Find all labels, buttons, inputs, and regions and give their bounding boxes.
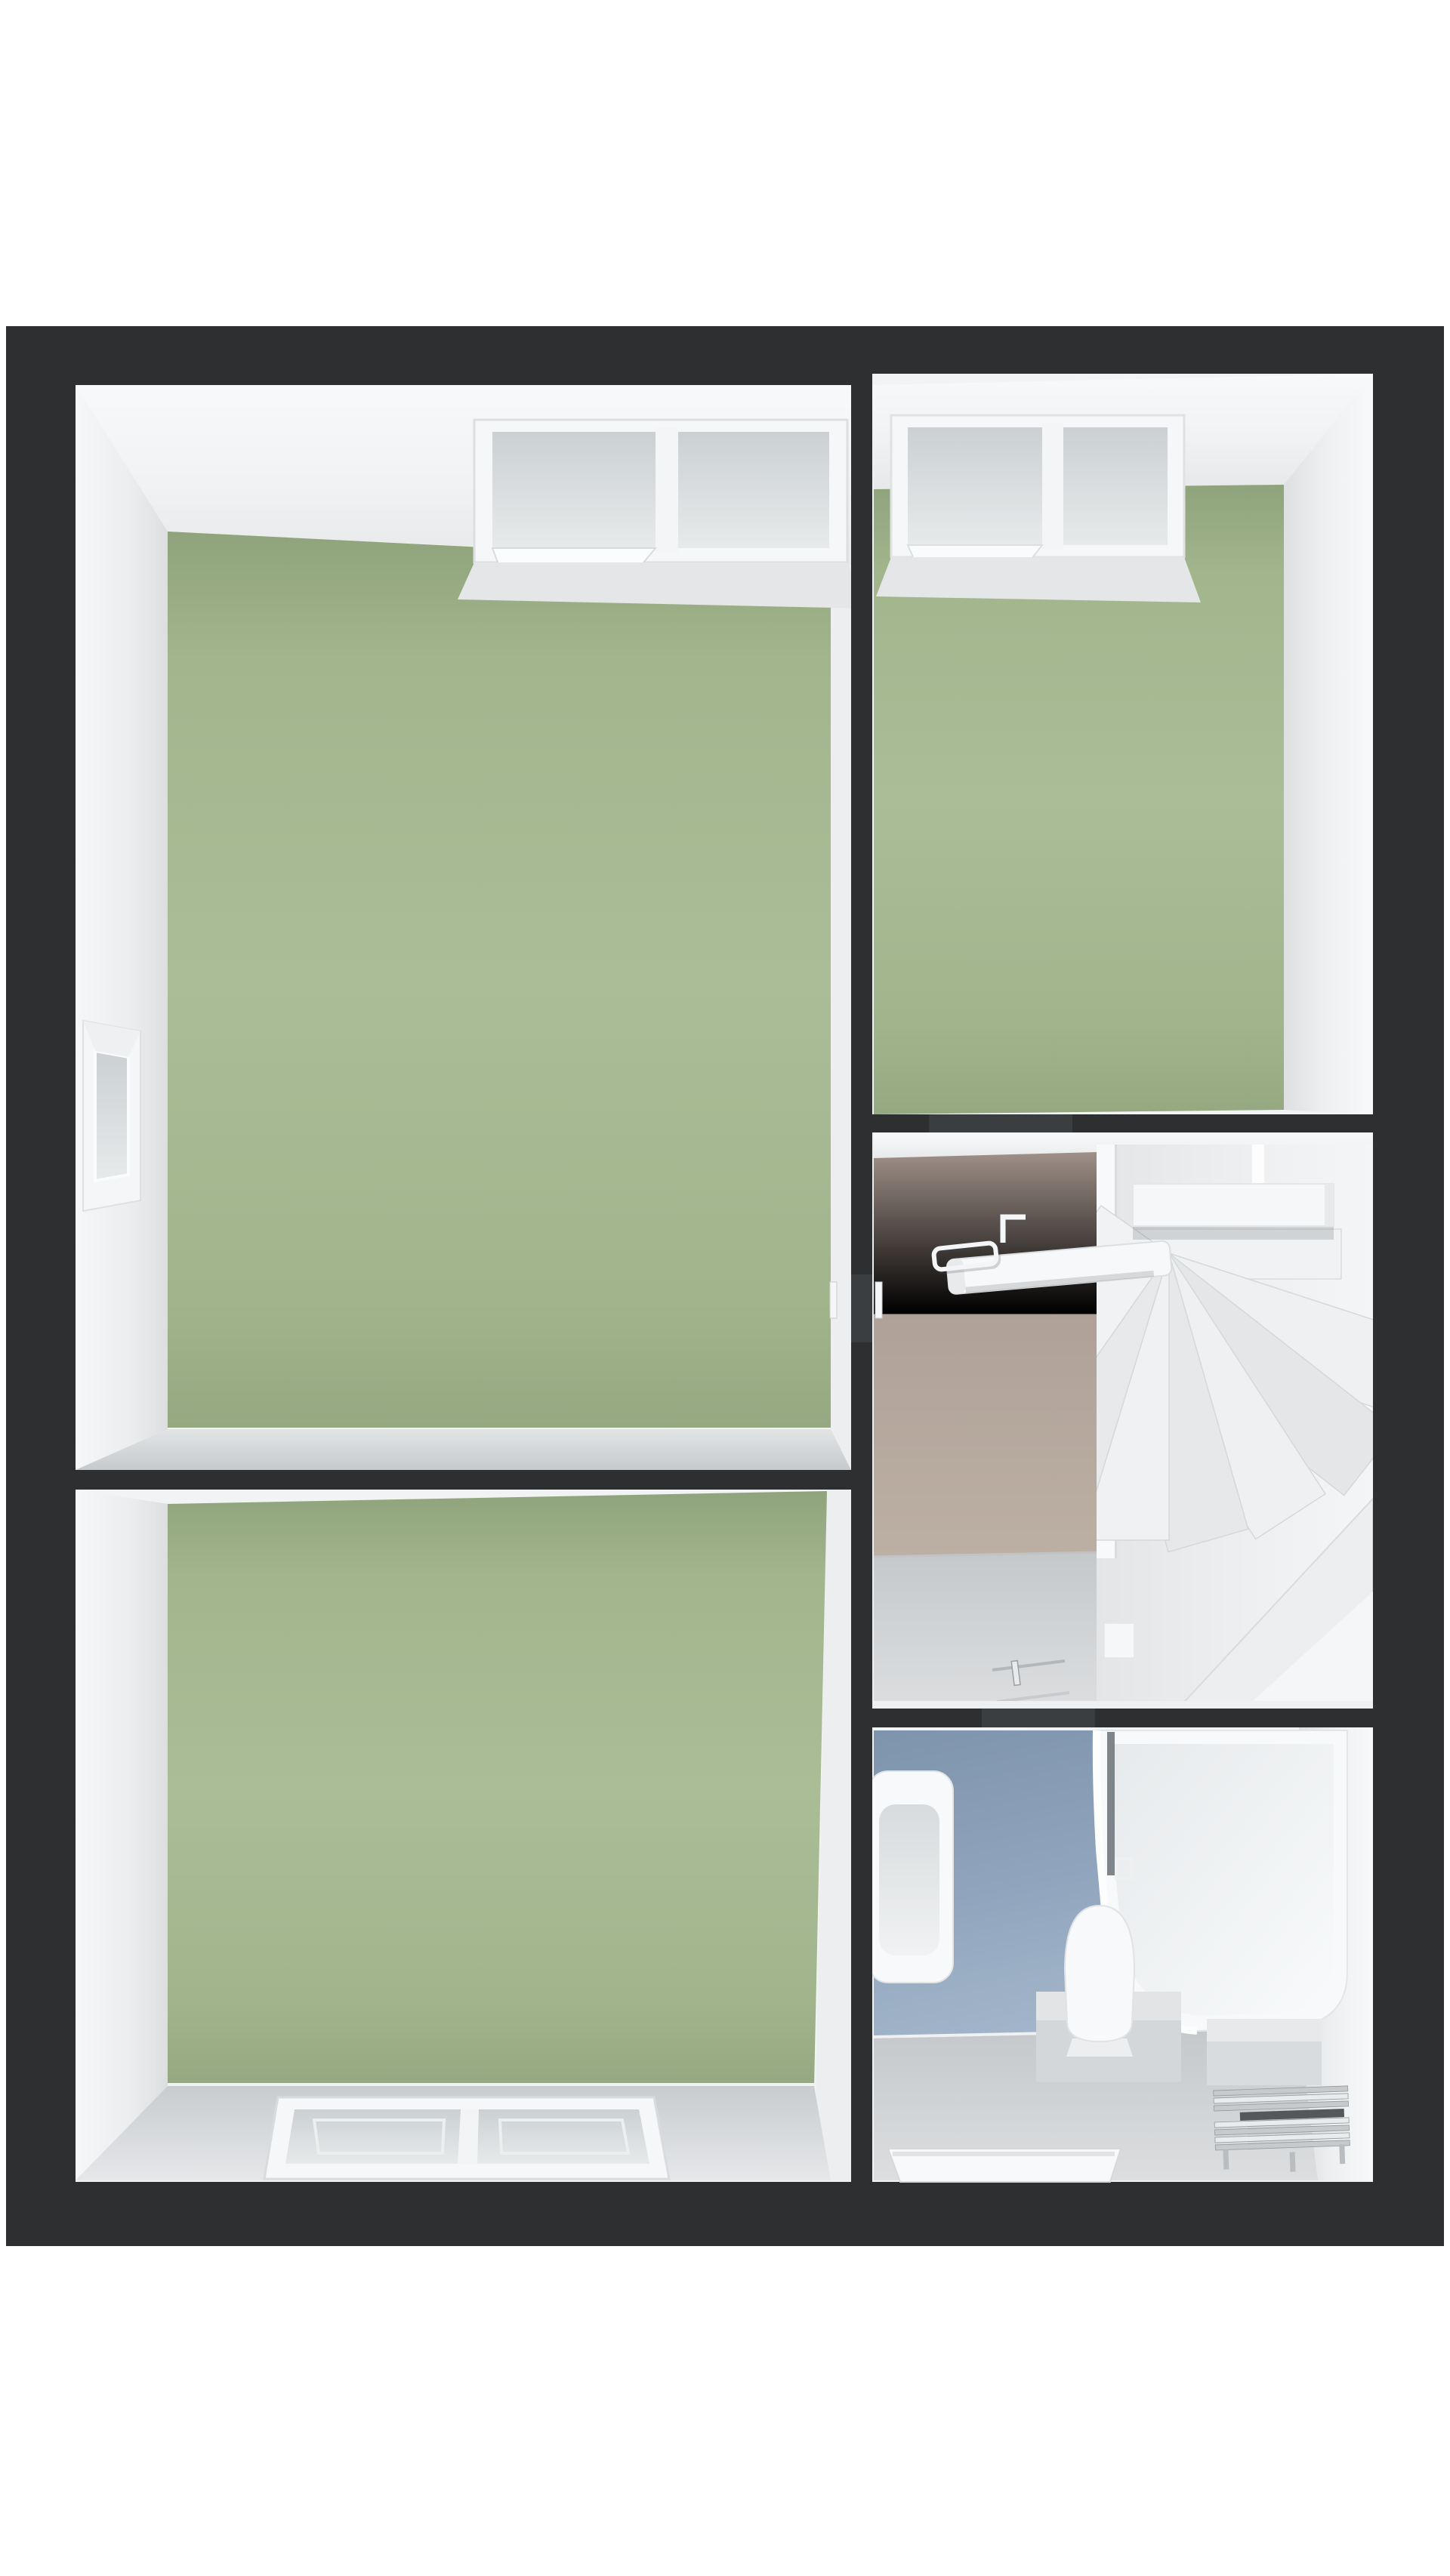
floor-plan-screenshot [0, 0, 1450, 2576]
room-bottom-left [76, 1490, 851, 2182]
window-glass-left [492, 432, 656, 548]
radiator-leg [1290, 2152, 1296, 2171]
toilet-lid [1065, 1906, 1134, 2041]
room-top-left-west-window-recess [83, 1021, 140, 1211]
radiator-leg [1223, 2149, 1229, 2169]
bathroom [853, 1727, 1373, 2182]
balustrade-beam-endcap [1325, 1184, 1334, 1226]
door-handle-icon [830, 1282, 837, 1318]
room-top-left-west-wall-face [76, 385, 168, 1470]
window-mullion [656, 427, 678, 553]
partition-landing-bathroom-cut [872, 1709, 1373, 1727]
window-glass-left [908, 427, 1042, 545]
stairwell-light-slit [1252, 1145, 1264, 1185]
window-mullion [458, 2109, 479, 2164]
room-top-left-north-window [458, 420, 867, 609]
door-opening-main-partition [851, 1274, 872, 1342]
partition-main-vertical-cut [851, 326, 872, 2182]
window-sill-reveal [876, 557, 1201, 602]
partition-left-rooms-cut [76, 1470, 851, 1490]
floor-plan-canvas [0, 0, 1450, 2576]
room-top-left-east-wall-sliver [831, 565, 851, 1470]
radiator-leg [1339, 2144, 1345, 2164]
landing [830, 1132, 1442, 1709]
washbasin-bowl [879, 1804, 939, 1955]
room-top-right-north-window [876, 415, 1201, 602]
stair-bottom-newel-block [1104, 1623, 1134, 1658]
balustrade-shadow [1133, 1226, 1334, 1240]
landing-floor-gray-south [874, 1552, 1097, 1709]
door-opening-landing-bathroom [982, 1709, 1095, 1727]
shower-screen-edge [1107, 1732, 1115, 1875]
room-top-right [872, 374, 1373, 1131]
handrail-endcap [946, 1259, 966, 1295]
toilet [1065, 1906, 1134, 2057]
bathroom-mat-well [888, 2149, 1121, 2182]
room-bottom-left-south-window [264, 2097, 669, 2179]
partition-top-lip [874, 1701, 1373, 1709]
room-top-left-south-wall-face [76, 1429, 851, 1470]
room-bottom-left-floor [168, 1491, 827, 2086]
bathtub-inner [1111, 1744, 1334, 2016]
window-glass-right [678, 432, 829, 548]
door-handle-icon [875, 1282, 882, 1318]
room-top-right-east-wall-face [1284, 374, 1373, 1114]
door-opening-topright-landing [929, 1114, 1072, 1132]
room-top-left-floor [168, 532, 831, 1429]
balustrade-beam [1133, 1184, 1334, 1226]
window-mullion [1042, 423, 1063, 550]
bath-step-top [1207, 2019, 1322, 2041]
window-glass-right [1063, 427, 1168, 545]
recess-window-pane [95, 1051, 128, 1181]
room-top-left [76, 385, 867, 1490]
room-bottom-left-west-wall-face [76, 1490, 168, 2180]
landing-floor-tan [874, 1152, 1097, 1557]
